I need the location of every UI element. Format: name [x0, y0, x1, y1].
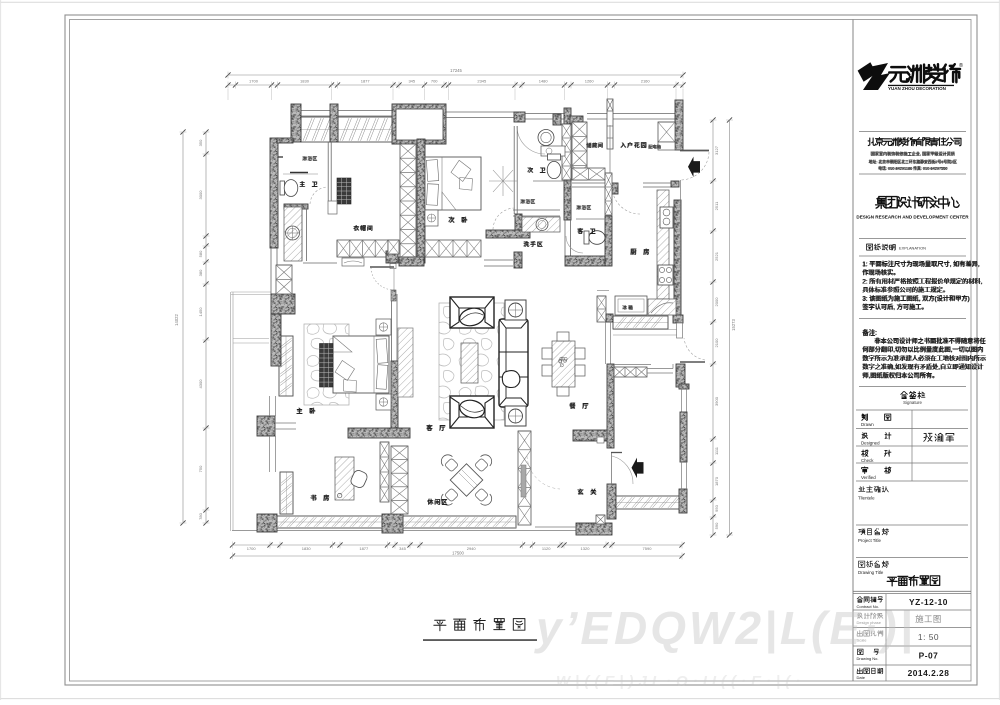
- svg-text:780: 780: [198, 512, 203, 519]
- svg-text:345: 345: [408, 79, 415, 84]
- svg-text:2014.2.28: 2014.2.28: [908, 668, 950, 678]
- svg-text:750: 750: [198, 465, 203, 472]
- svg-text:1877: 1877: [361, 79, 371, 84]
- svg-text:YUAN ZHOU DECORATION: YUAN ZHOU DECORATION: [888, 86, 946, 91]
- svg-text:y’EDQW2|L(E·)|: y’EDQW2|L(E·)|: [534, 602, 916, 654]
- svg-text:590: 590: [714, 522, 719, 529]
- svg-text:电话: 010-84291186 传真: 01: 电话: 010-84291186 传真: 010-64297550: [879, 166, 948, 171]
- svg-text:®: ®: [959, 62, 963, 69]
- svg-text:Signature: Signature: [903, 400, 922, 405]
- svg-text:师,图纸版权归本公司所有。: 师,图纸版权归本公司所有。: [863, 372, 939, 380]
- svg-text:客 卫: 客 卫: [578, 227, 599, 235]
- svg-text:DESIGN RESEARCH AND DEVELOPMEN: DESIGN RESEARCH AND DEVELOPMENT CENTER: [856, 215, 969, 220]
- svg-text:签字认可后, 方可施工。: 签字认可后, 方可施工。: [863, 303, 928, 311]
- svg-text:洗手区: 洗手区: [524, 240, 544, 248]
- svg-text:2160: 2160: [641, 79, 651, 84]
- svg-text:非本公司设计师之书面批准不得随意将任: 非本公司设计师之书面批准不得随意将任: [875, 337, 986, 345]
- svg-text:主 卫: 主 卫: [300, 180, 321, 188]
- svg-text:3900: 3900: [714, 396, 719, 406]
- svg-text:700: 700: [431, 79, 438, 84]
- svg-text:冰 箱: 冰 箱: [623, 304, 634, 311]
- svg-text:书 房: 书 房: [311, 494, 333, 502]
- svg-text:1450: 1450: [198, 307, 203, 317]
- svg-text:7590: 7590: [643, 546, 653, 551]
- svg-text:次 卧: 次 卧: [449, 216, 471, 224]
- svg-text:3: 该图纸为施工图纸, 双方(设计和甲方): 3: 该图纸为施工图纸, 双方(设计和甲方): [863, 295, 970, 303]
- svg-text:1700: 1700: [247, 546, 257, 551]
- svg-text:Date: Date: [857, 675, 866, 680]
- svg-text:17500: 17500: [452, 551, 464, 556]
- svg-text:1: 50: 1: 50: [918, 632, 939, 642]
- svg-text:1830: 1830: [300, 79, 310, 84]
- svg-text:客 厅: 客 厅: [427, 424, 449, 432]
- svg-text:1: 平面标注尺寸为现场量取尺寸, 如有差异,: 1: 平面标注尺寸为现场量取尺寸, 如有差异,: [863, 260, 981, 268]
- svg-text:1870: 1870: [714, 476, 719, 486]
- svg-text:2511: 2511: [714, 201, 719, 210]
- svg-text:Project Title: Project Title: [858, 538, 881, 543]
- svg-text:储藏间: 储藏间: [587, 141, 604, 149]
- svg-text:入户花园: 入户花园: [621, 141, 648, 149]
- svg-text:15273: 15273: [731, 319, 736, 331]
- svg-text:2000: 2000: [714, 297, 719, 307]
- svg-text:淋浴区: 淋浴区: [521, 198, 536, 205]
- svg-text:2100: 2100: [714, 338, 719, 348]
- svg-text:地址: 北京市朝阳区北三环东路静安西街2号6号院2区: 地址: 北京市朝阳区北三环东路静安西街2号6号院2区: [869, 159, 957, 164]
- svg-text:Drawing Title: Drawing Title: [858, 570, 884, 575]
- svg-text:2940: 2940: [467, 546, 477, 551]
- svg-text:Designed: Designed: [861, 441, 880, 446]
- svg-text:2: 所有用材严格按照工程报价单规定的材料,: 2: 所有用材严格按照工程报价单规定的材料,: [863, 277, 983, 285]
- svg-text:1320: 1320: [581, 546, 591, 551]
- svg-text:玄 关: 玄 关: [578, 488, 600, 496]
- svg-text:衣帽间: 衣帽间: [354, 224, 374, 232]
- svg-text:休闲区: 休闲区: [428, 498, 449, 506]
- svg-text:何部分翻印,切勿以比例量度此图,一切以图内: 何部分翻印,切勿以比例量度此图,一切以图内: [863, 346, 984, 354]
- svg-text:1120: 1120: [542, 546, 551, 551]
- svg-text:数字所示为准承建人必须在工地核对图内所示: 数字所示为准承建人必须在工地核对图内所示: [863, 354, 987, 362]
- svg-text:950: 950: [714, 504, 719, 511]
- svg-text:1260: 1260: [585, 79, 595, 84]
- svg-text:Tlientele: Tlientele: [858, 496, 875, 501]
- svg-text:2521: 2521: [714, 251, 719, 261]
- svg-text:数字之准确,如发现有矛盾处,自立即通知设计: 数字之准确,如发现有矛盾处,自立即通知设计: [863, 363, 984, 371]
- svg-text:2345: 2345: [477, 79, 487, 84]
- svg-text:1877: 1877: [359, 546, 369, 551]
- svg-text:3000: 3000: [198, 190, 203, 200]
- svg-text:厨 房: 厨 房: [631, 248, 653, 256]
- svg-text:14022: 14022: [174, 314, 179, 326]
- svg-text:具体标准参照公司的施工规定。: 具体标准参照公司的施工规定。: [863, 286, 950, 294]
- svg-text:3127: 3127: [714, 145, 719, 155]
- svg-text:1480: 1480: [539, 79, 549, 84]
- svg-text:淋浴区: 淋浴区: [577, 204, 592, 211]
- svg-text:Drawn: Drawn: [861, 422, 874, 427]
- svg-text:EXPLANATION: EXPLANATION: [899, 246, 926, 251]
- svg-text:施工图: 施工图: [915, 614, 942, 624]
- svg-text:作现场核实。: 作现场核实。: [863, 269, 900, 277]
- svg-text:Drawing No.: Drawing No.: [857, 656, 879, 661]
- svg-text:W|((E|)JL·O·II((·E·|(·: W|((E|)JL·O·II((·E·|(·: [556, 673, 805, 690]
- svg-text:国家室内装饰装修施工企业, 国家甲级设计资质: 国家室内装饰装修施工企业, 国家甲级设计资质: [871, 150, 955, 156]
- svg-text:Verified: Verified: [861, 475, 876, 480]
- svg-text:配电箱: 配电箱: [649, 143, 662, 150]
- svg-text:Check: Check: [861, 458, 874, 463]
- svg-text:餐 厅: 餐 厅: [570, 402, 592, 410]
- svg-text:淋浴区: 淋浴区: [303, 155, 318, 162]
- svg-text:4300: 4300: [198, 379, 203, 389]
- svg-text:次 卫: 次 卫: [528, 166, 549, 174]
- svg-text:1700: 1700: [249, 79, 259, 84]
- svg-text:17245: 17245: [450, 68, 462, 73]
- svg-text:P-07: P-07: [919, 651, 939, 661]
- svg-text:1830: 1830: [302, 546, 312, 551]
- svg-text:580: 580: [198, 250, 203, 257]
- svg-text:345: 345: [399, 546, 406, 551]
- svg-text:350: 350: [198, 139, 203, 146]
- svg-text:主 卧: 主 卧: [297, 407, 319, 415]
- svg-text:备注:: 备注:: [863, 328, 878, 337]
- svg-text:1111: 1111: [714, 446, 719, 455]
- svg-text:380: 380: [198, 269, 203, 276]
